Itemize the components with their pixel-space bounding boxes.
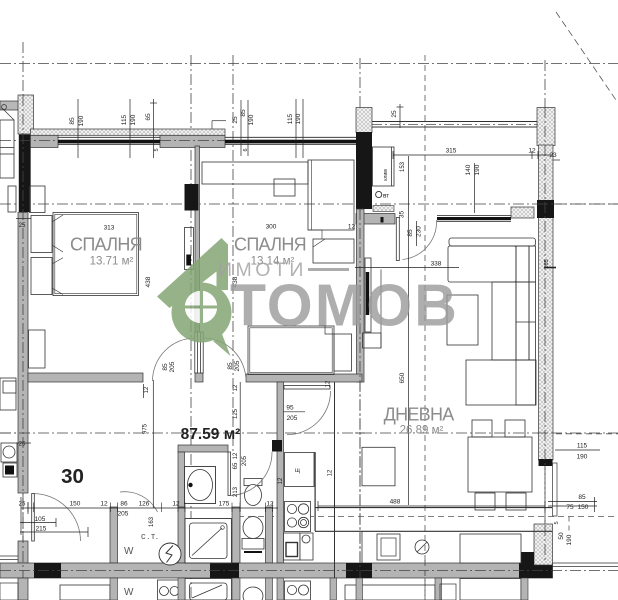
svg-text:975: 975 bbox=[143, 423, 149, 434]
svg-text:125: 125 bbox=[233, 408, 239, 419]
svg-text:5: 5 bbox=[554, 521, 560, 524]
svg-text:85: 85 bbox=[407, 229, 414, 237]
svg-text:клим: клим bbox=[383, 169, 389, 181]
svg-text:153: 153 bbox=[400, 161, 406, 172]
svg-text:126: 126 bbox=[139, 501, 150, 508]
svg-text:115: 115 bbox=[577, 443, 588, 450]
svg-text:313: 313 bbox=[104, 225, 115, 232]
svg-text:75: 75 bbox=[566, 504, 574, 511]
svg-text:12: 12 bbox=[528, 148, 536, 155]
svg-text:25: 25 bbox=[19, 442, 26, 448]
svg-text:вт: вт bbox=[383, 192, 389, 199]
svg-text:105: 105 bbox=[35, 516, 46, 523]
svg-text:215: 215 bbox=[36, 526, 47, 533]
svg-text:12: 12 bbox=[266, 501, 274, 508]
svg-text:ДНЕВНА: ДНЕВНА bbox=[384, 405, 455, 425]
svg-text:W: W bbox=[124, 546, 134, 557]
svg-text:338: 338 bbox=[431, 261, 442, 268]
svg-text:85: 85 bbox=[69, 117, 76, 125]
svg-text:85: 85 bbox=[227, 362, 234, 370]
svg-text:12: 12 bbox=[233, 452, 239, 459]
svg-text:65: 65 bbox=[233, 462, 239, 469]
svg-text:с.т.: с.т. bbox=[141, 531, 160, 541]
svg-text:12: 12 bbox=[144, 386, 150, 393]
svg-text:190: 190 bbox=[130, 114, 137, 125]
svg-text:205: 205 bbox=[287, 415, 298, 422]
svg-text:230: 230 bbox=[416, 226, 423, 237]
svg-text:86: 86 bbox=[120, 501, 128, 508]
svg-text:65: 65 bbox=[145, 113, 152, 121]
svg-text:30: 30 bbox=[61, 465, 84, 488]
svg-text:205: 205 bbox=[234, 360, 241, 371]
svg-text:6: 6 bbox=[243, 148, 249, 151]
svg-text:115: 115 bbox=[287, 113, 294, 124]
svg-text:12: 12 bbox=[233, 384, 239, 391]
svg-text:25: 25 bbox=[391, 110, 398, 118]
svg-text:213: 213 bbox=[233, 486, 239, 497]
svg-text:205: 205 bbox=[242, 455, 248, 466]
svg-text:205: 205 bbox=[118, 511, 129, 518]
svg-text:12: 12 bbox=[326, 380, 332, 387]
svg-text:115: 115 bbox=[121, 114, 128, 125]
svg-text:190: 190 bbox=[566, 534, 573, 545]
svg-text:26.89 м²: 26.89 м² bbox=[400, 425, 444, 437]
svg-text:12: 12 bbox=[328, 469, 334, 476]
svg-text:175: 175 bbox=[219, 501, 230, 508]
svg-text:25: 25 bbox=[19, 223, 26, 229]
svg-text:12: 12 bbox=[348, 224, 356, 231]
svg-text:85: 85 bbox=[578, 494, 586, 501]
svg-text:438: 438 bbox=[145, 276, 152, 287]
svg-text:205: 205 bbox=[169, 361, 176, 372]
svg-text:12: 12 bbox=[278, 477, 284, 484]
svg-text:23: 23 bbox=[549, 152, 557, 159]
svg-text:87.59 м²: 87.59 м² bbox=[181, 426, 241, 443]
svg-text:650: 650 bbox=[399, 372, 406, 383]
svg-text:5: 5 bbox=[154, 148, 160, 151]
svg-text:12: 12 bbox=[172, 501, 180, 508]
svg-text:ТОМОВ: ТОМОВ bbox=[230, 273, 459, 339]
svg-text:190: 190 bbox=[474, 164, 481, 175]
svg-text:13.71 м²: 13.71 м² bbox=[90, 256, 134, 268]
svg-text:150: 150 bbox=[70, 501, 81, 508]
svg-text:85: 85 bbox=[162, 363, 169, 371]
svg-text:165: 165 bbox=[544, 259, 550, 268]
svg-text:300: 300 bbox=[266, 224, 277, 231]
svg-text:W: W bbox=[124, 587, 134, 598]
svg-text:163: 163 bbox=[149, 516, 155, 527]
svg-text:35: 35 bbox=[399, 211, 406, 219]
svg-text:190: 190 bbox=[78, 115, 85, 126]
svg-text:140: 140 bbox=[465, 164, 472, 175]
svg-text:315: 315 bbox=[446, 148, 457, 155]
svg-text:25: 25 bbox=[19, 502, 26, 508]
svg-text:СПАЛНЯ: СПАЛНЯ bbox=[70, 235, 142, 255]
svg-text:12: 12 bbox=[100, 501, 108, 508]
svg-text:190: 190 bbox=[248, 114, 255, 125]
svg-text:щ: щ bbox=[295, 468, 300, 474]
svg-text:190: 190 bbox=[577, 454, 588, 461]
svg-text:25: 25 bbox=[232, 116, 239, 124]
svg-text:85: 85 bbox=[240, 109, 247, 117]
svg-text:СПАЛНЯ: СПАЛНЯ bbox=[234, 235, 306, 255]
svg-text:50: 50 bbox=[558, 532, 565, 540]
svg-text:190: 190 bbox=[295, 113, 302, 124]
svg-text:95: 95 bbox=[286, 405, 294, 412]
svg-text:150: 150 bbox=[578, 504, 589, 511]
svg-text:488: 488 bbox=[390, 499, 401, 506]
